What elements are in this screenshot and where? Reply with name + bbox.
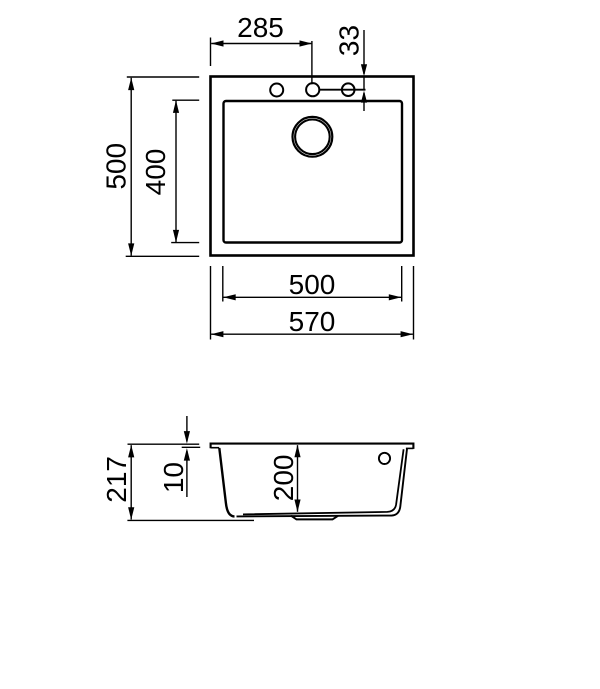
svg-text:400: 400 (140, 149, 171, 196)
svg-text:285: 285 (237, 12, 284, 43)
svg-text:33: 33 (333, 25, 364, 56)
svg-text:217: 217 (101, 456, 132, 503)
svg-text:570: 570 (289, 306, 336, 337)
svg-text:500: 500 (101, 143, 132, 190)
svg-text:500: 500 (289, 269, 336, 300)
svg-text:10: 10 (158, 462, 189, 493)
svg-text:200: 200 (268, 455, 299, 502)
